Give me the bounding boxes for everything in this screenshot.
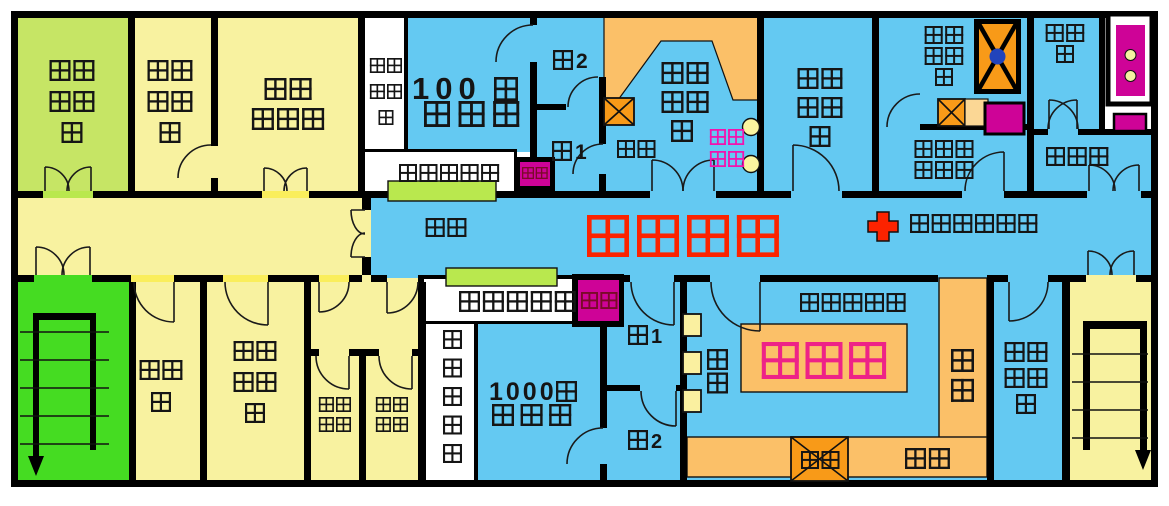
svg-text:2: 2 xyxy=(651,431,662,453)
svg-text:1: 1 xyxy=(651,326,662,348)
svg-text:1: 1 xyxy=(575,141,587,164)
svg-text:100: 100 xyxy=(412,71,482,106)
svg-text:1000: 1000 xyxy=(489,378,557,406)
svg-text:2: 2 xyxy=(576,50,588,73)
